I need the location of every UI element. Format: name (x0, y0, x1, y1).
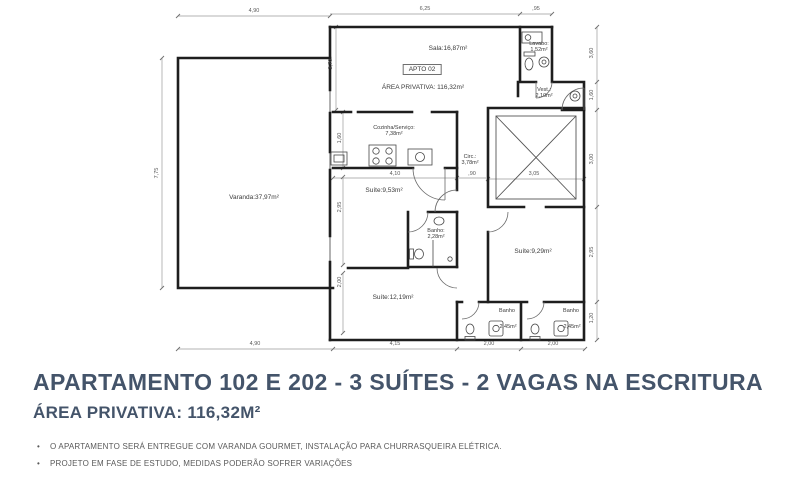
note-item-1: O APARTAMENTO SERÁ ENTREGUE COM VARANDA … (37, 438, 502, 455)
room-label-varanda: Varanda:37,97m² (229, 194, 279, 202)
room-label-vest: Vest.:2,10m² (535, 87, 552, 100)
dim-inner-410: 4,10 (390, 171, 401, 177)
dim-bottom-2: 4,15 (390, 341, 401, 347)
dim-inner-295: 2,95 (337, 202, 343, 213)
dim-inner-305: 3,05 (529, 171, 540, 177)
dim-top-2: 6,25 (420, 6, 431, 12)
apto-number-box: APTO 02 (403, 64, 442, 75)
room-area-banho-right: 2,45m² (563, 324, 580, 330)
dim-top-1: 4,90 (249, 8, 260, 14)
page-subtitle: ÁREA PRIVATIVA: 116,32M² (33, 403, 261, 423)
dim-right-5: 1,20 (589, 313, 595, 324)
dim-right-2: 1,60 (589, 90, 595, 101)
dim-right-4: 2,95 (589, 247, 595, 258)
room-label-banho-right: Banho (563, 308, 579, 314)
dim-inner-90: ,90 (468, 171, 476, 177)
page-title: APARTAMENTO 102 E 202 - 3 SUÍTES - 2 VAG… (33, 369, 763, 396)
dim-top-3: ,95 (532, 6, 540, 12)
room-label-banho-left: Banho (499, 308, 515, 314)
dim-inner-270: 2,70 (328, 59, 334, 70)
dim-inner-200: 2,00 (337, 277, 343, 288)
notes-list: O APARTAMENTO SERÁ ENTREGUE COM VARANDA … (37, 438, 502, 472)
room-label-suite-1219: Suíte:12,19m² (373, 294, 414, 302)
dim-left-1: 7,75 (154, 168, 160, 179)
room-label-sala: Sala:16,87m² (429, 45, 468, 53)
room-label-banho-228: Banho:2,28m² (427, 228, 444, 241)
note-item-2: PROJETO EM FASE DE ESTUDO, MEDIDAS PODER… (37, 455, 502, 472)
plan-area-label: ÁREA PRIVATIVA: 116,32m² (382, 84, 464, 92)
room-label-lavabo: Lavabo:1,52m² (529, 41, 549, 54)
room-label-circ: Circ.:3,78m² (461, 154, 478, 167)
room-label-suite-929: Suíte:9,29m² (514, 248, 551, 256)
room-label-cozinha: Cozinha/Serviço:7,38m² (373, 125, 415, 138)
dim-bottom-3: 2,00 (484, 341, 495, 347)
room-area-banho-left: 2,45m² (499, 324, 516, 330)
dim-right-1: 3,60 (589, 48, 595, 59)
dim-inner-160: 1,60 (337, 133, 343, 144)
room-label-suite-953: Suíte:9,53m² (365, 187, 402, 195)
dim-bottom-4: 2,00 (548, 341, 559, 347)
dim-bottom-1: 4,90 (250, 341, 261, 347)
dim-right-3: 3,00 (589, 154, 595, 165)
